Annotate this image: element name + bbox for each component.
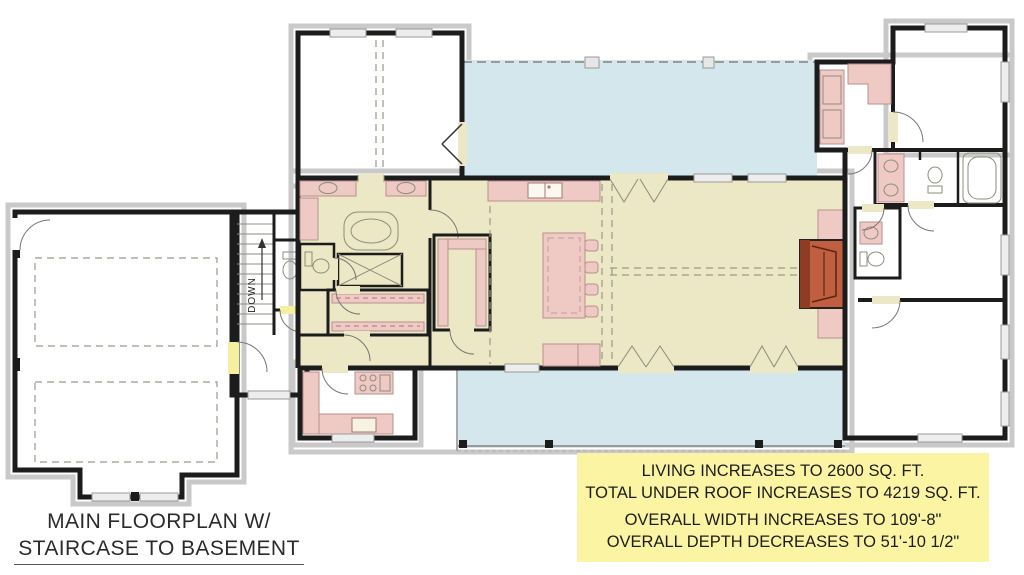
bedroom-3 (908, 201, 1009, 275)
buffet-cabinet (543, 344, 600, 366)
stair-direction-arrow (258, 238, 266, 300)
right-wing (817, 24, 1009, 442)
master-bedroom (298, 33, 462, 178)
scullery (300, 364, 415, 442)
note-depth: OVERALL DEPTH DECREASES TO 51'-10 1/2" (581, 531, 985, 553)
plan-caption: MAIN FLOORPLAN W/ STAIRCASE TO BASEMENT (14, 508, 304, 565)
shared-bath (875, 150, 1005, 205)
note-living: LIVING INCREASES TO 2600 SQ. FT. (581, 460, 985, 482)
caption-line2: STAIRCASE TO BASEMENT (14, 535, 303, 565)
note-under-roof: TOTAL UNDER ROOF INCREASES TO 4219 SQ. F… (581, 482, 985, 504)
stove-icon (355, 372, 393, 394)
bath-3 (855, 204, 900, 278)
note-width: OVERALL WIDTH INCREASES TO 109'-8" (581, 509, 985, 531)
bedroom-4 (858, 296, 1009, 442)
garage (11, 212, 237, 501)
stairs-down-label: DOWN (247, 277, 258, 313)
caption-line1: MAIN FLOORPLAN W/ (14, 508, 304, 535)
increase-note-box: LIVING INCREASES TO 2600 SQ. FT. TOTAL U… (577, 453, 989, 562)
bedroom-2 (889, 24, 1009, 142)
top-porch (463, 57, 817, 178)
floorplan-page: DOWN (0, 0, 1024, 575)
rear-porch (457, 370, 845, 451)
